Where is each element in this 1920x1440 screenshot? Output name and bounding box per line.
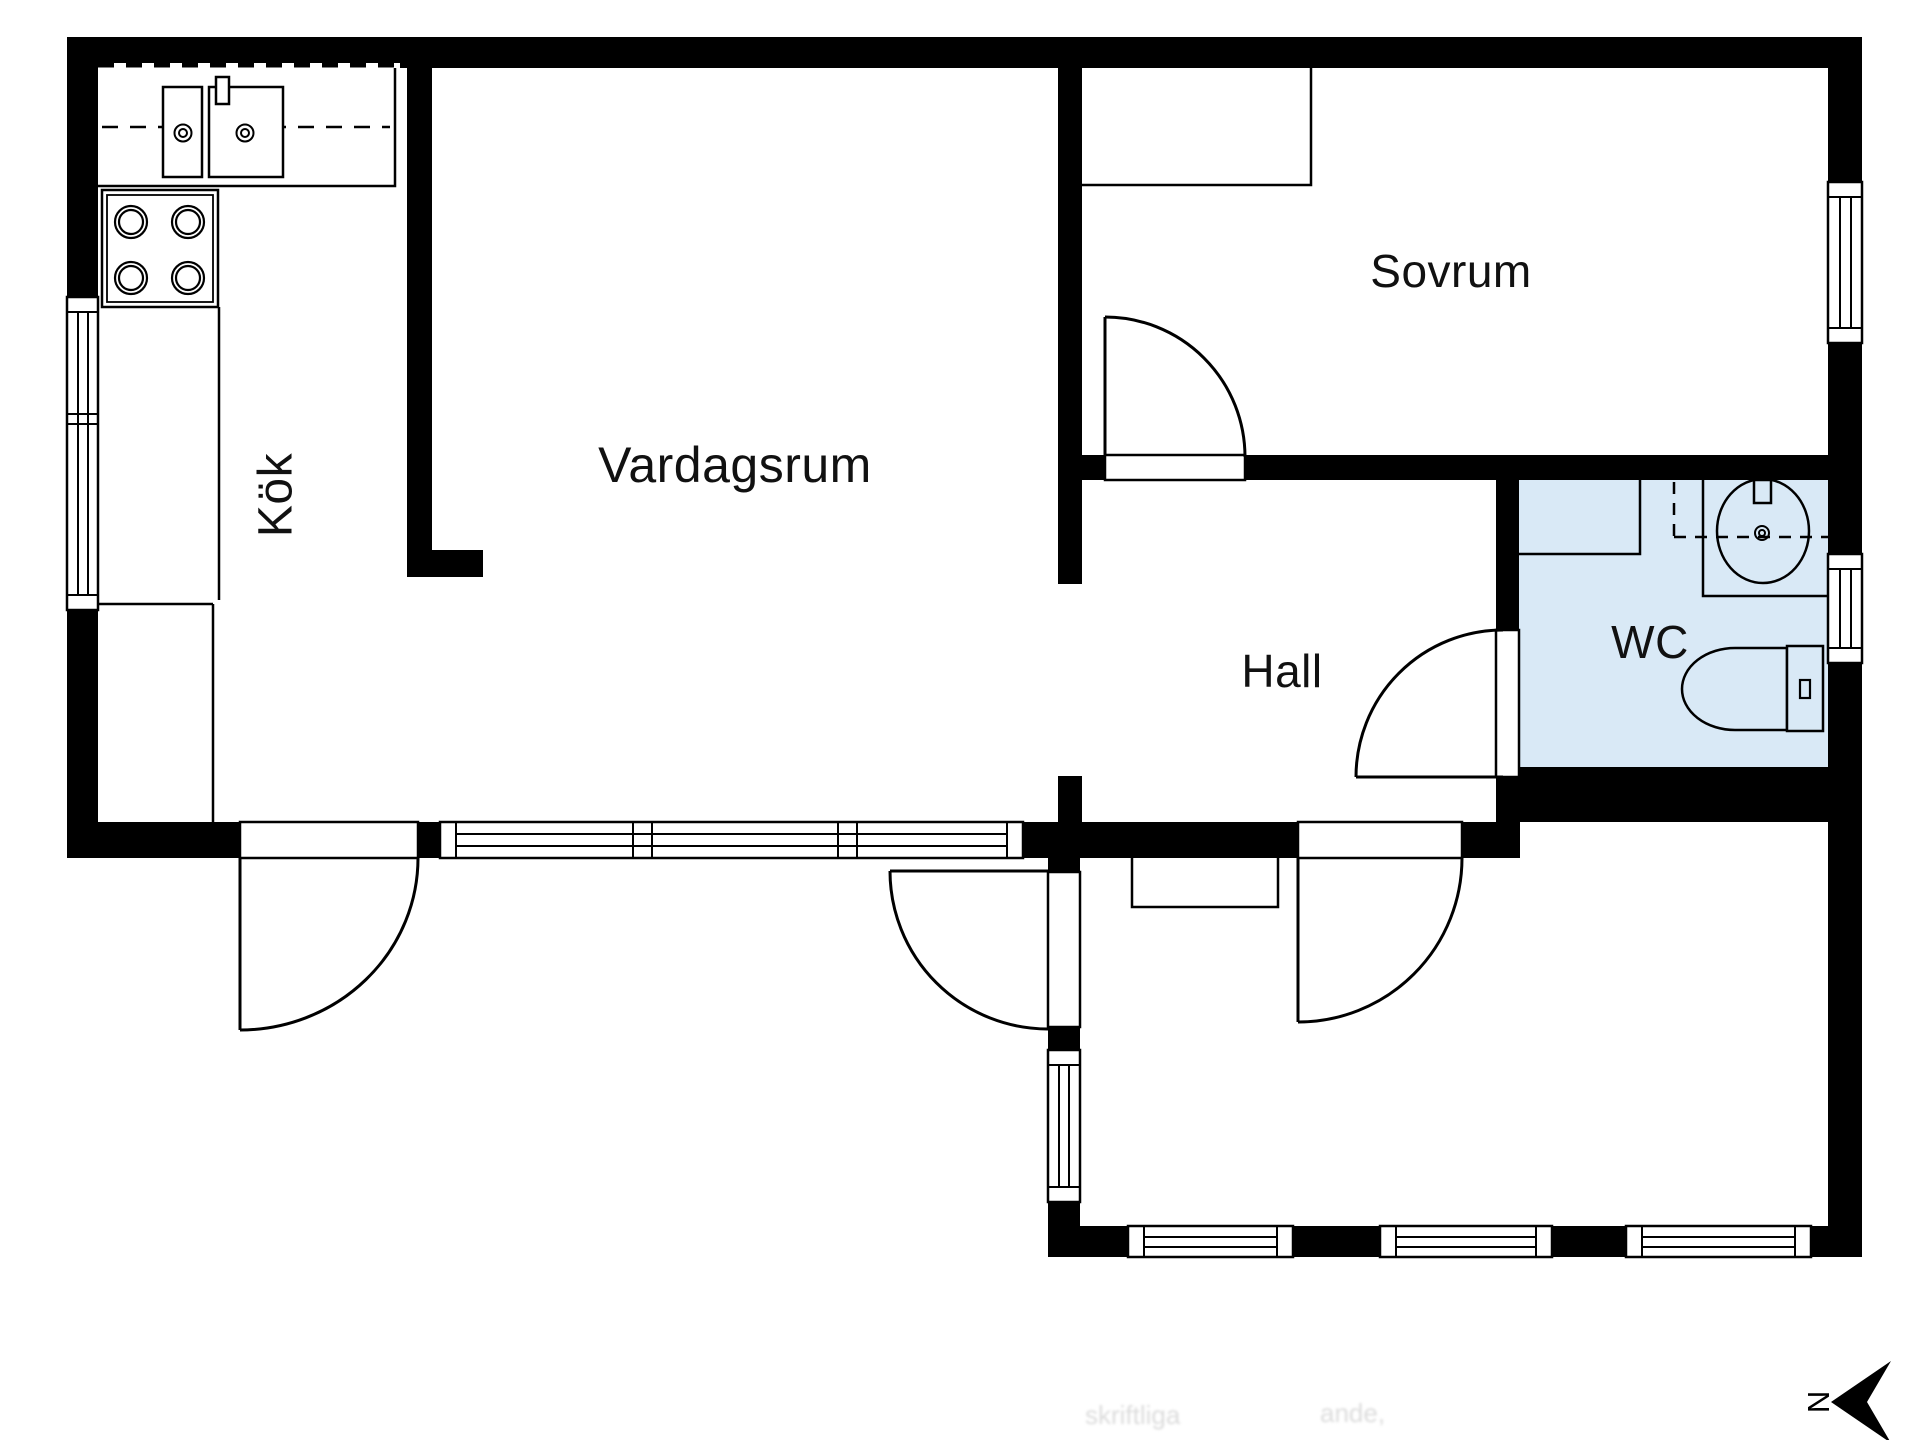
entry-door (240, 822, 418, 1030)
toilet-icon (1682, 646, 1823, 731)
room-label-vardagsrum: Vardagsrum (598, 436, 872, 494)
room-label-wc: WC (1611, 615, 1689, 669)
windows-room-bottom (1128, 1226, 1811, 1257)
window-left-wall (67, 297, 98, 610)
kitchen-counter (98, 65, 402, 822)
room-south-door (1298, 822, 1462, 1022)
room-label-hall: Hall (1241, 644, 1322, 698)
north-arrow-icon (1831, 1361, 1891, 1440)
room-closet (1132, 858, 1278, 907)
watermark-fragment: ande, (1320, 1398, 1385, 1429)
passage-vardagsrum-hall (1058, 583, 1082, 777)
compass-north-label: N (1800, 1391, 1836, 1413)
window-room-left (1048, 1050, 1080, 1202)
window-vardagsrum-bottom (440, 822, 1023, 858)
room-west-door (890, 871, 1080, 1029)
watermark-fragment: skriftliga (1085, 1400, 1180, 1431)
kitchen-sink-icon (163, 77, 283, 177)
wc-door (1356, 630, 1519, 777)
room-label-kok: Kök (249, 453, 304, 537)
window-wc-right (1828, 554, 1862, 663)
stove-icon (102, 190, 218, 307)
sovrum-closet (1082, 68, 1311, 185)
floor-plan: Kök Vardagsrum Sovrum Hall WC N skriftli… (0, 0, 1920, 1440)
room-label-sovrum: Sovrum (1370, 244, 1531, 298)
sovrum-door (1105, 317, 1245, 480)
window-sovrum-right (1828, 182, 1862, 343)
floor-plan-drawing (0, 0, 1920, 1440)
